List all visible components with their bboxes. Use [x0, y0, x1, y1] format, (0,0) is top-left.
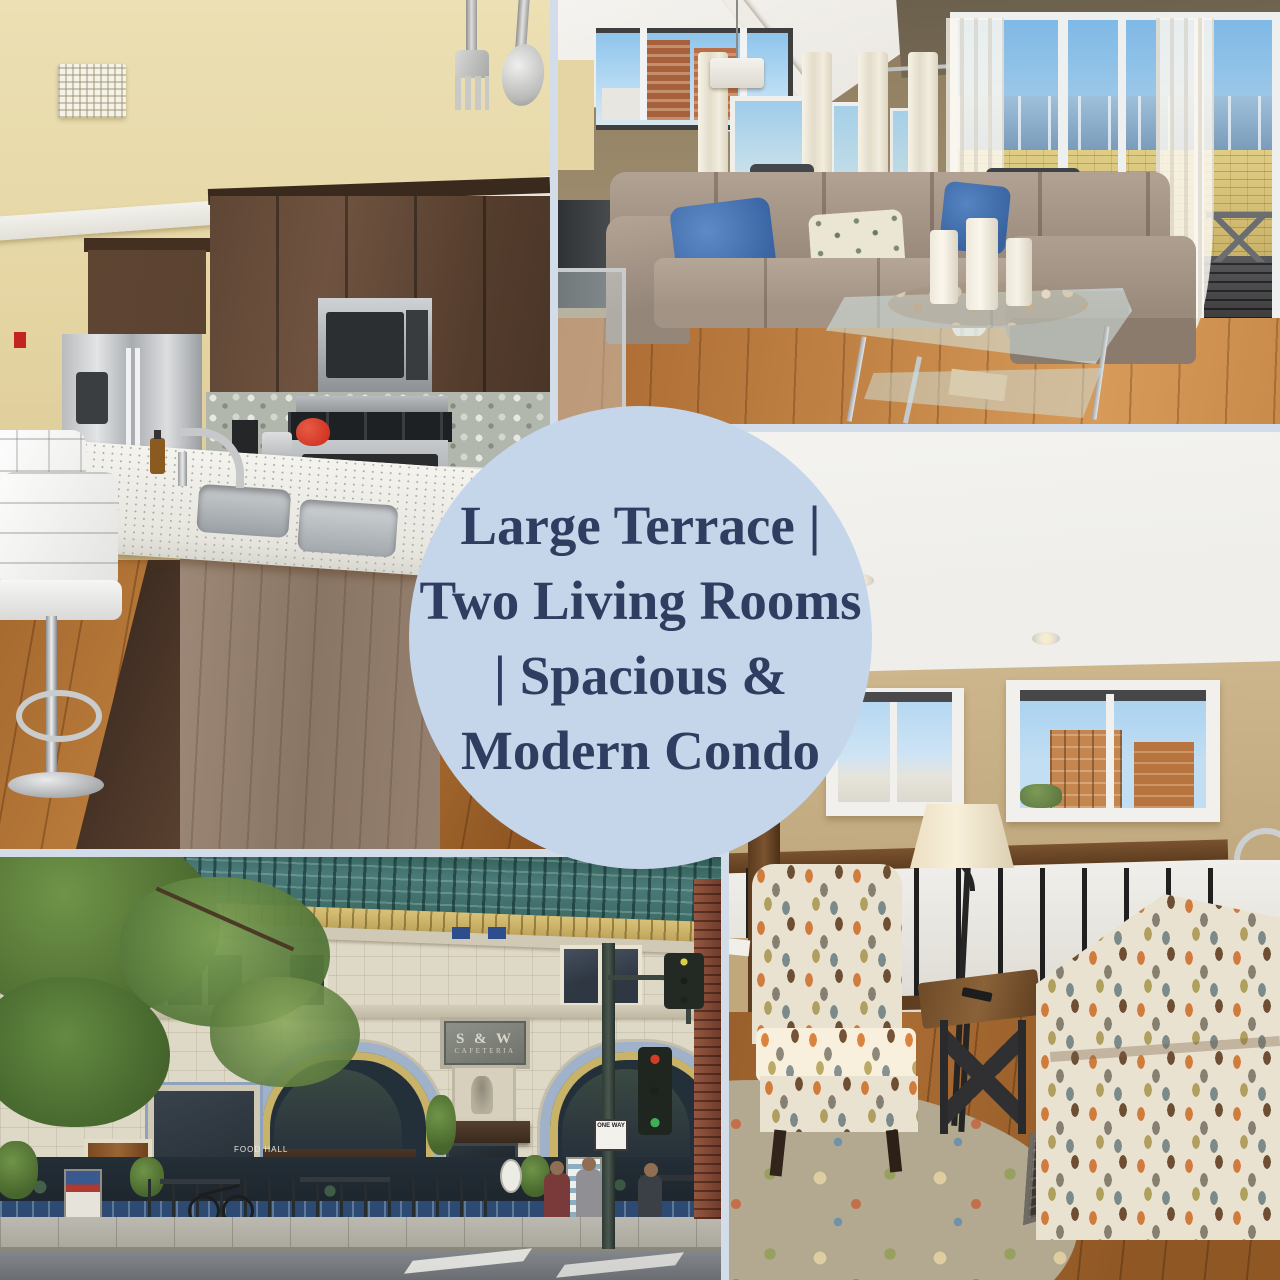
fridge-water-dispenser: [76, 372, 108, 424]
pendant-cord: [736, 0, 738, 62]
window-mullion: [890, 702, 897, 804]
divider-vertical-bottom: [721, 857, 729, 1280]
pillar-candle: [930, 230, 958, 304]
fire-alarm: [14, 332, 26, 348]
pillar-candle: [1006, 238, 1032, 306]
fork-wall-art: [455, 50, 489, 78]
window-mullion: [1106, 694, 1114, 810]
oval-sign: [500, 1159, 522, 1193]
spoon-wall-art: [499, 42, 547, 108]
city-building-tan: [646, 40, 690, 120]
accent-chair-left-seat: [756, 1028, 916, 1082]
side-table-metal-base: [940, 1020, 1026, 1134]
plaque-text-cafeteria: CAFETERIA: [455, 1047, 516, 1056]
bar-stool-footring: [16, 690, 102, 742]
pillar-candle: [966, 218, 998, 310]
badge-line-2: Two Living Rooms: [419, 563, 861, 638]
traffic-signal: [664, 953, 704, 1009]
kitchen-cabinet-edge: [558, 60, 594, 170]
island-wood-panel: [180, 548, 440, 849]
brick-building-view: [1134, 742, 1194, 808]
cabinet-above-fridge: [88, 250, 206, 334]
upper-window: [560, 945, 602, 1007]
tree-foliage: [210, 977, 360, 1087]
listing-collage-canvas: S & W CAFETERIA FOOD HALL: [0, 0, 1280, 1280]
badge-line-3: | Spacious &: [494, 638, 787, 713]
glass-side-table: [558, 268, 626, 424]
person-seated: [638, 1175, 662, 1221]
blue-parapet-wall: [958, 96, 1272, 154]
traffic-signal: [638, 1047, 672, 1135]
floor-lamp-shade: [910, 804, 1014, 868]
pendant-lamp-shade: [710, 58, 764, 88]
photo-street-view: S & W CAFETERIA FOOD HALL: [0, 857, 721, 1280]
sink-basin-left: [196, 484, 291, 538]
sink-basin-right: [297, 499, 398, 558]
accent-chair-left-back: [752, 864, 902, 1044]
person-seated: [576, 1169, 602, 1217]
loft-window-right: [1006, 680, 1220, 822]
person-seated: [544, 1173, 570, 1219]
planter-shrub: [426, 1095, 456, 1155]
fork-wall-art-tines: [455, 76, 489, 110]
planter-shrub: [0, 1141, 38, 1199]
tree-view: [1020, 784, 1062, 808]
fridge-handles: [126, 348, 140, 448]
city-building-white: [602, 88, 642, 120]
one-way-sign: ONE WAY: [594, 1119, 628, 1151]
cafe-table: [160, 1179, 240, 1184]
title-badge: Large Terrace | Two Living Rooms | Spaci…: [409, 406, 872, 869]
cafe-table: [300, 1177, 390, 1182]
blue-tile-accent: [488, 927, 506, 939]
photo-living-room: [558, 0, 1280, 424]
badge-line-4: Modern Condo: [461, 713, 820, 788]
window-mullion: [640, 28, 647, 120]
badge-line-1: Large Terrace |: [460, 488, 820, 563]
recessed-light: [1032, 632, 1060, 645]
red-kettle: [296, 418, 330, 446]
terrace-table-legs: [1210, 218, 1268, 262]
fountain-relief-panel: [452, 1065, 516, 1127]
fork-wall-art-handle: [466, 0, 477, 56]
bar-stool-back-front: [0, 472, 118, 592]
bar-stool-seat: [0, 580, 122, 620]
brick-building-edge: [694, 879, 721, 1219]
cafeteria-plaque: S & W CAFETERIA: [440, 1017, 530, 1069]
soap-bottle: [150, 438, 165, 474]
microwave-door: [326, 312, 404, 378]
faucet-base: [178, 452, 187, 486]
food-hall-sign: FOOD HALL: [234, 1145, 296, 1159]
wall-vent: [58, 64, 126, 118]
bar-stool-base: [8, 772, 104, 798]
accent-chair-left-base: [760, 1076, 918, 1132]
blue-tile-accent: [452, 927, 470, 939]
microwave-controls: [406, 310, 428, 380]
plaque-text-sw: S & W: [456, 1031, 514, 1047]
